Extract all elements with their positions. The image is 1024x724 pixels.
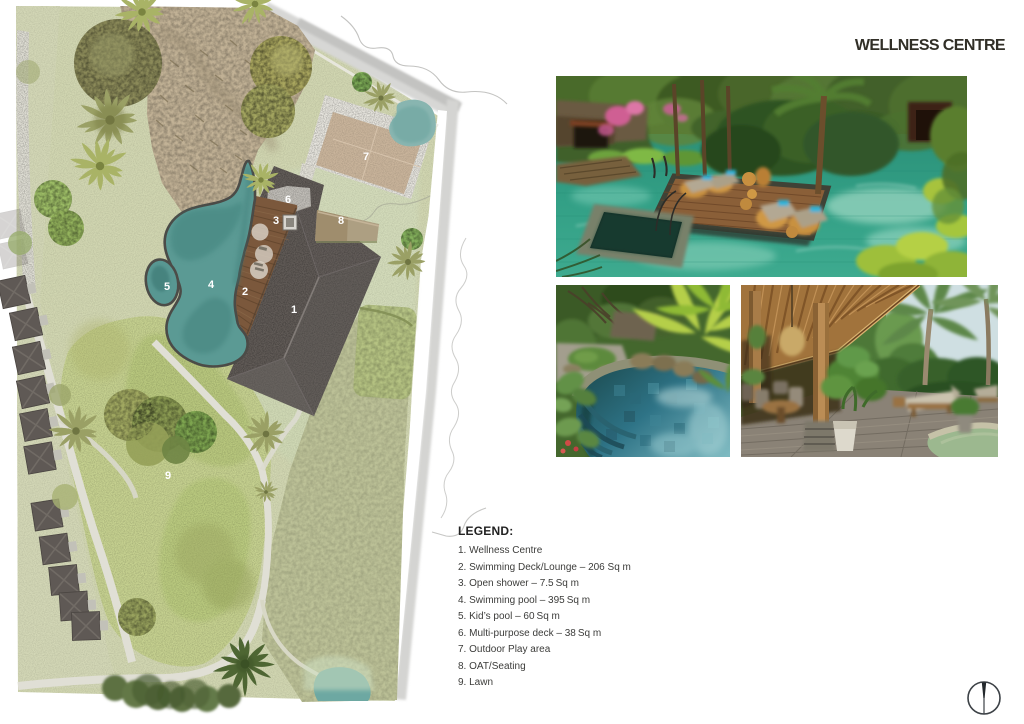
- svg-text:8: 8: [338, 215, 344, 227]
- svg-text:5: 5: [164, 281, 170, 293]
- svg-text:6: 6: [285, 194, 291, 206]
- svg-text:3: 3: [273, 215, 279, 227]
- svg-text:1: 1: [291, 304, 297, 316]
- svg-text:4: 4: [208, 279, 215, 291]
- svg-text:2: 2: [242, 286, 248, 298]
- svg-text:9: 9: [165, 470, 171, 482]
- svg-text:7: 7: [363, 151, 369, 163]
